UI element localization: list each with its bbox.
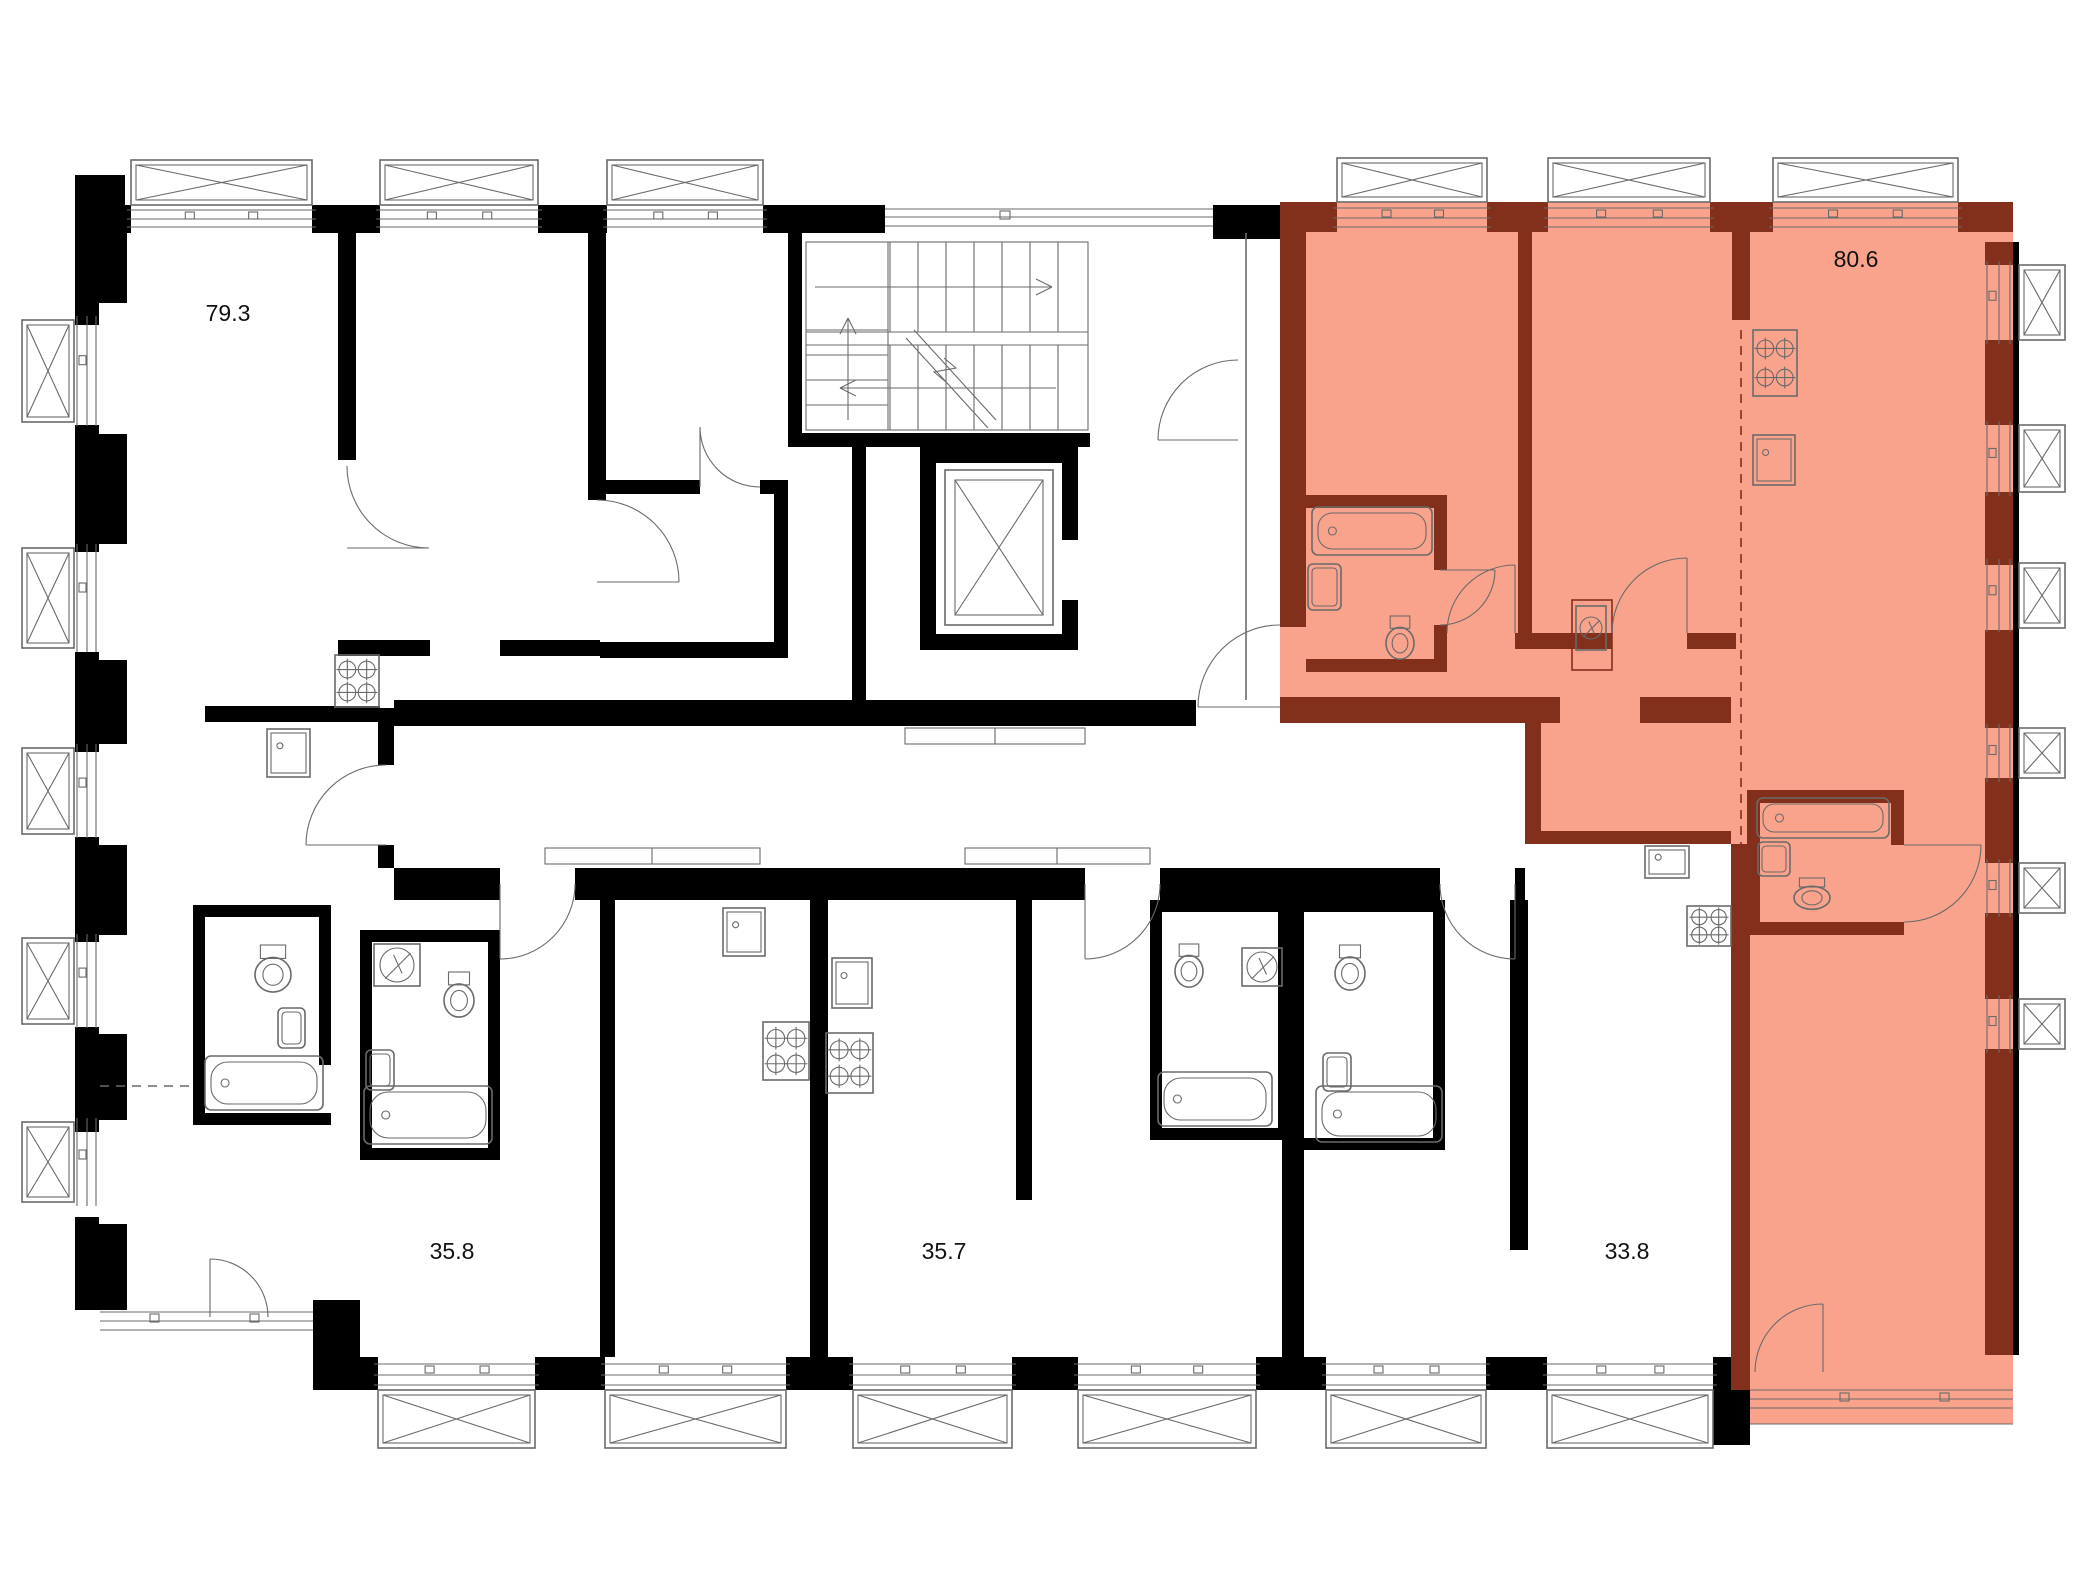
window-icon — [1078, 1390, 1256, 1448]
wall-segment — [75, 1027, 99, 1132]
door-icon — [1198, 625, 1280, 707]
wall-segment — [538, 205, 607, 233]
bathtub-drain — [1173, 1095, 1181, 1103]
sill-lines — [127, 210, 316, 227]
wall-segment — [75, 207, 99, 325]
highlight-wall-segment — [1687, 633, 1736, 649]
sill-tick — [249, 212, 258, 219]
highlight-wall-segment — [1985, 1049, 2013, 1355]
window-sill — [127, 210, 316, 227]
loggia-glazing — [100, 1312, 313, 1330]
sink-inner — [282, 1012, 301, 1044]
wall-segment — [99, 1224, 127, 1310]
wall-segment — [600, 642, 788, 658]
window-glazing — [2024, 270, 2060, 335]
sink-outline — [267, 729, 310, 777]
highlight-wall-segment — [1985, 913, 2013, 999]
wall-segment — [75, 652, 99, 752]
window-glazing — [383, 1395, 530, 1443]
highlight-wall-segment — [1640, 697, 1731, 723]
wall-segment — [1062, 447, 1078, 540]
sill-tick — [723, 1366, 732, 1373]
window-glazing — [27, 943, 69, 1019]
wall-segment — [1515, 868, 1525, 900]
window-icon — [380, 160, 538, 205]
wall-segment — [1304, 900, 1445, 912]
window-sill — [376, 210, 542, 227]
wall-segment — [319, 905, 331, 1065]
bathtub-drain — [221, 1079, 229, 1087]
door-icon — [347, 466, 429, 548]
window-glazing — [2024, 430, 2060, 487]
highlight-wall-segment — [1985, 492, 2013, 565]
stove-icon — [335, 655, 379, 707]
bathtub-inner — [211, 1062, 317, 1104]
sill-lines — [849, 1364, 1016, 1385]
wall-segment — [788, 233, 802, 447]
area-label-79-3: 79.3 — [206, 300, 251, 326]
wall-segment — [75, 837, 99, 942]
area-label-80-6: 80.6 — [1834, 246, 1879, 272]
sill-tick — [480, 1366, 489, 1373]
window-icon — [1547, 1390, 1713, 1448]
window-glazing — [1331, 1395, 1481, 1443]
stove-burner — [356, 682, 378, 704]
sink-inner — [727, 912, 761, 952]
bathtub-outline — [1316, 1086, 1442, 1142]
wall-segment — [788, 433, 1090, 447]
highlight-wall-segment — [1434, 625, 1447, 672]
sill-lines — [77, 744, 96, 838]
window-glazing — [27, 753, 69, 829]
sill-tick — [708, 212, 717, 219]
sill-tick — [1194, 1366, 1203, 1373]
bathtub-icon — [1316, 1086, 1442, 1142]
wall-segment — [852, 447, 866, 700]
wall-segment — [920, 447, 1078, 463]
sill-tick — [659, 1366, 668, 1373]
bathtub-icon — [1158, 1072, 1272, 1126]
window-icon — [1337, 158, 1487, 202]
apartment-35-7-region[interactable] — [828, 900, 1016, 1355]
highlight-wall-segment — [1958, 202, 2013, 232]
wall-segment — [1150, 900, 1162, 1140]
electrical-panel-circle — [1247, 952, 1277, 982]
sill-tick — [1131, 1366, 1140, 1373]
toilet-tank — [260, 945, 285, 958]
sink-outline — [723, 908, 765, 956]
highlight-wall-segment — [1985, 340, 2013, 425]
toilet-bowl — [1335, 957, 1365, 990]
wall-segment — [1062, 600, 1078, 650]
highlight-wall-segment — [1515, 633, 1612, 649]
sill-lines — [1322, 1364, 1490, 1385]
window-icon — [885, 209, 1213, 226]
door-icon — [1085, 884, 1160, 959]
sill-tick — [79, 1150, 86, 1159]
wall-segment — [1510, 900, 1528, 1250]
bathtub-inner — [1164, 1078, 1266, 1120]
sink-inner — [271, 733, 306, 773]
wall-segment — [338, 640, 430, 656]
wall-segment — [338, 233, 356, 460]
window-icon — [2019, 999, 2065, 1049]
window-icon — [2019, 563, 2065, 628]
sill-tick — [425, 1366, 434, 1373]
sill-tick — [79, 778, 86, 787]
stove-burner — [765, 1052, 788, 1075]
toilet-bowl-inner — [1181, 962, 1197, 981]
area-label-33-8: 33.8 — [1605, 1238, 1650, 1264]
wall-segment — [75, 425, 99, 552]
bathtub-inner — [1322, 1092, 1436, 1136]
sink-faucet — [277, 743, 283, 749]
elevator-cross — [955, 480, 1043, 615]
window-glazing — [27, 553, 69, 643]
floor-plan-canvas: 79.3 80.6 35.8 35.7 33.8 — [0, 0, 2098, 1586]
window-icon — [1773, 158, 1958, 202]
sink-faucet — [733, 922, 739, 928]
window-glazing — [612, 165, 758, 200]
window-sill — [849, 1364, 1016, 1385]
stairs-arrow-down — [840, 380, 1056, 396]
wall-segment — [786, 1357, 853, 1390]
window-glazing — [1552, 1395, 1708, 1443]
door-icon — [1440, 884, 1515, 959]
sill-tick — [1597, 1366, 1606, 1373]
wall-segment — [575, 868, 1085, 900]
highlight-wall-segment — [1747, 790, 1904, 803]
window-glazing — [1342, 163, 1482, 197]
sill-lines — [1074, 1364, 1260, 1385]
window-glazing — [1083, 1395, 1251, 1443]
stove-burner — [336, 682, 358, 704]
window-glazing — [385, 165, 533, 200]
wall-segment — [606, 480, 700, 494]
highlight-wall-segment — [1487, 202, 1548, 232]
highlight-wall-segment — [1518, 232, 1532, 633]
sill-tick — [1655, 1366, 1664, 1373]
sill-tick — [79, 583, 86, 592]
window-icon — [1548, 158, 1710, 202]
stove-burner — [785, 1052, 808, 1075]
window-glazing — [2024, 568, 2060, 623]
sill-tick — [79, 968, 86, 977]
highlight-wall-segment — [1747, 922, 1904, 935]
highlight-wall-segment — [1891, 790, 1904, 845]
window-sill — [77, 934, 96, 1028]
toilet-tank — [1340, 945, 1361, 958]
toilet-icon — [255, 945, 291, 992]
wall-segment — [193, 1113, 331, 1125]
window-icon — [605, 1390, 786, 1448]
door-icon — [1158, 360, 1238, 440]
window-glazing — [27, 1127, 69, 1197]
highlight-wall-segment — [1985, 630, 2013, 728]
highlight-wall-segment — [1710, 202, 1773, 232]
wall-segment — [760, 480, 788, 494]
window-glazing — [2024, 733, 2060, 773]
wall-segment — [1256, 1357, 1326, 1390]
wall-segment — [205, 706, 380, 722]
door-icon — [306, 765, 386, 845]
highlight-wall-segment — [1525, 831, 1731, 844]
bathtub-outline — [205, 1056, 323, 1110]
wall-segment — [600, 900, 615, 1357]
door-icon — [700, 427, 760, 487]
area-label-35-7: 35.7 — [922, 1238, 967, 1264]
electrical-panel-bolt — [1252, 957, 1275, 980]
window-icon — [853, 1390, 1012, 1448]
apartment-33-8-region[interactable] — [1528, 868, 1731, 1355]
wall-segment — [394, 700, 1196, 726]
wall-segment — [1150, 900, 1290, 912]
window-icon — [2019, 863, 2065, 913]
sill-lines — [77, 316, 96, 426]
wall-segment — [378, 708, 394, 765]
sill-lines — [376, 210, 542, 227]
highlight-wall-segment — [1434, 495, 1447, 570]
window-icon — [1326, 1390, 1486, 1448]
sink-faucet — [1655, 854, 1661, 860]
window-glazing — [136, 165, 307, 200]
wall-segment — [535, 1357, 605, 1390]
window-sill — [77, 316, 96, 426]
sill-lines — [1543, 1364, 1717, 1385]
wall-segment — [2013, 242, 2019, 1355]
stove-burner — [336, 659, 358, 681]
highlight-wall-segment — [1985, 778, 2013, 863]
toilet-bowl-inner — [263, 964, 283, 985]
floor-plan: 79.3 80.6 35.8 35.7 33.8 — [0, 0, 2098, 1586]
wall-segment — [193, 905, 205, 1125]
window-sill — [77, 544, 96, 652]
sill-tick — [901, 1366, 910, 1373]
toilet-tank — [1179, 944, 1199, 956]
window-icon — [22, 548, 74, 648]
window-sill — [1322, 1364, 1490, 1385]
sill-tick — [185, 212, 194, 219]
window-icon — [2019, 728, 2065, 778]
kitchen-sink-icon — [723, 908, 765, 956]
sill-tick — [1430, 1366, 1439, 1373]
wall-segment — [588, 233, 606, 500]
wall-segment — [1486, 1357, 1547, 1390]
toilet-bowl-inner — [1342, 963, 1359, 983]
wall-segment — [99, 845, 127, 935]
highlight-wall-segment — [1731, 844, 1750, 1390]
window-icon — [22, 938, 74, 1024]
window-sill — [1543, 1364, 1717, 1385]
stove-outline — [763, 1022, 809, 1080]
wall-segment — [1016, 900, 1032, 1200]
highlight-wall-segment — [1306, 495, 1447, 508]
electrical-panel-outline — [1242, 948, 1282, 986]
window-icon — [22, 748, 74, 834]
elevator-icon — [945, 470, 1053, 625]
wall-segment — [1160, 868, 1440, 900]
sill-tick — [956, 1366, 965, 1373]
door-icon — [597, 500, 679, 582]
sill-tick — [483, 212, 492, 219]
toilet-bowl — [255, 957, 291, 992]
bathtub-outline — [1158, 1072, 1272, 1126]
window-icon — [22, 1122, 74, 1202]
window-sill — [77, 744, 96, 838]
wall-segment — [75, 1217, 99, 1310]
window-sill — [601, 1364, 790, 1385]
wall-segment — [810, 900, 828, 1357]
area-label-35-8: 35.8 — [430, 1238, 475, 1264]
electrical-panel-icon — [1242, 948, 1282, 986]
wall-segment — [75, 175, 125, 207]
wall-segment — [920, 634, 1078, 650]
window-icon — [378, 1390, 535, 1448]
wall-segment — [1150, 1128, 1290, 1140]
bathtub-icon — [205, 1056, 323, 1110]
wall-segment — [763, 205, 885, 233]
door-icon — [210, 1259, 268, 1317]
wall-segment — [920, 447, 936, 650]
sill-lines — [603, 210, 767, 227]
window-glazing — [2024, 868, 2060, 908]
toilet-icon — [1175, 944, 1203, 987]
stove-icon — [763, 1022, 809, 1080]
window-sill — [1074, 1364, 1260, 1385]
highlight-wall-segment — [1280, 697, 1560, 723]
sill-tick — [1374, 1366, 1383, 1373]
highlight-wall-segment — [1306, 659, 1447, 672]
window-glazing — [610, 1395, 781, 1443]
window-glazing — [2024, 1004, 2060, 1044]
sink-icon — [278, 1008, 305, 1048]
wall-segment — [394, 868, 500, 900]
window-icon — [607, 160, 763, 205]
wall-segment — [313, 1357, 378, 1390]
sill-lines — [374, 1364, 539, 1385]
window-glazing — [1778, 163, 1953, 197]
highlight-wall-segment — [1280, 202, 1306, 627]
kitchen-sink-icon — [267, 729, 310, 777]
wall-segment — [312, 205, 380, 233]
toilet-bowl — [1175, 955, 1203, 987]
stove-burner — [765, 1027, 788, 1050]
wall-segment — [774, 494, 788, 642]
sill-tick — [79, 356, 86, 365]
wall-segment — [1012, 1357, 1078, 1390]
apartment-35-8-region[interactable] — [360, 900, 600, 1355]
window-glazing — [858, 1395, 1007, 1443]
stairs-icon — [806, 242, 1088, 430]
stove-burner — [356, 659, 378, 681]
window-sill — [374, 1364, 539, 1385]
window-glazing — [885, 209, 1213, 226]
sill-lines — [77, 934, 96, 1028]
stove-burner — [785, 1027, 808, 1050]
sill-tick — [654, 212, 663, 219]
toilet-icon — [1335, 945, 1365, 990]
wall-segment — [500, 640, 600, 656]
sill-tick — [1000, 211, 1010, 219]
bathtub-drain — [1333, 1110, 1341, 1118]
wall-segment — [1433, 900, 1445, 1150]
highlight-wall-segment — [1525, 723, 1541, 831]
stairs-arrow-up — [815, 279, 1052, 295]
window-glazing — [27, 325, 69, 417]
window-icon — [131, 160, 312, 205]
window-icon — [22, 320, 74, 422]
sill-lines — [77, 544, 96, 652]
window-sill — [603, 210, 767, 227]
window-icon — [2019, 265, 2065, 340]
highlight-wall-segment — [1732, 228, 1750, 320]
sink-inner — [1327, 1057, 1347, 1087]
sill-lines — [601, 1364, 790, 1385]
wall-segment — [378, 845, 394, 868]
wall-segment — [1304, 1138, 1445, 1150]
sill-tick — [427, 212, 436, 219]
wall-segment — [99, 1034, 127, 1120]
wall-segment — [1278, 900, 1290, 1140]
window-icon — [2019, 425, 2065, 492]
window-glazing — [1553, 163, 1705, 197]
wall-segment — [193, 905, 331, 917]
